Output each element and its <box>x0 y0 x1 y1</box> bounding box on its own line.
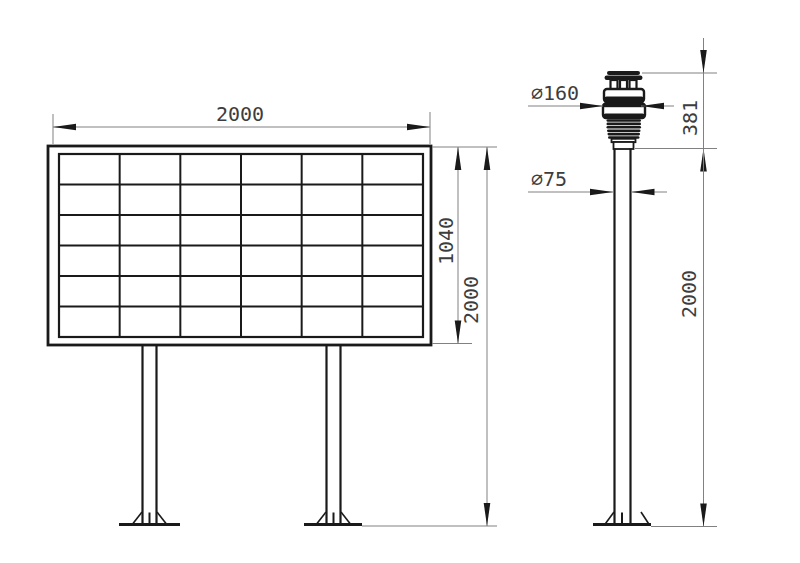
arrowhead-up <box>455 147 462 170</box>
technical-drawing: 2000 1040 2000 <box>0 0 800 563</box>
dimension-pole-height: 2000 <box>651 149 717 527</box>
dim-label-board-total-height: 2000 <box>459 276 483 324</box>
shield-rib <box>608 133 641 136</box>
dim-label-pole-diameter: ∅75 <box>531 167 567 191</box>
dimension-head-diameter: ∅160 <box>528 81 674 109</box>
gusset <box>641 512 649 524</box>
gusset <box>606 512 615 524</box>
sensor-neck <box>614 142 634 149</box>
arrowhead-right <box>407 124 430 131</box>
gusset <box>341 512 350 524</box>
sensor-body-band <box>604 104 645 107</box>
board-left-leg <box>119 346 180 525</box>
arrowhead-up <box>484 147 491 170</box>
dimension-board-width: 2000 <box>53 102 430 144</box>
cad-drawing-sheet: 2000 1040 2000 <box>0 0 800 563</box>
dim-label-head-height: 381 <box>678 100 702 136</box>
sensor-body-band <box>605 97 644 102</box>
panel-grid-lines <box>59 154 423 337</box>
mounting-pole <box>593 149 651 525</box>
sensor-pole-view: ∅160 ∅75 381 2000 <box>528 38 717 527</box>
sensor-body-band <box>604 114 645 118</box>
shield-rib <box>607 123 642 126</box>
sensor-cap-top <box>607 71 640 75</box>
dim-label-pole-height: 2000 <box>677 270 701 318</box>
arrowhead-right <box>580 103 603 110</box>
gusset <box>317 512 326 524</box>
arrowhead-right <box>590 189 613 196</box>
arrowhead-down <box>700 504 707 527</box>
weather-sensor-head <box>603 71 645 149</box>
arrowhead-left <box>53 124 76 131</box>
gusset <box>157 512 166 524</box>
dim-label-panel-height: 1040 <box>434 217 458 265</box>
dim-label-head-diameter: ∅160 <box>531 81 579 105</box>
arrowhead-down <box>484 503 491 526</box>
display-board-view: 2000 1040 2000 <box>48 102 497 526</box>
dim-label-board-width: 2000 <box>216 102 264 126</box>
arrowhead-left <box>632 189 655 196</box>
dimension-pole-diameter: ∅75 <box>528 167 667 195</box>
shield-rib <box>607 126 642 129</box>
shield-rib <box>607 129 641 132</box>
sensor-radiation-shield <box>607 119 642 139</box>
dimension-head-height: 381 <box>635 38 717 172</box>
arrowhead-down <box>700 50 707 73</box>
board-right-leg <box>304 346 362 525</box>
shield-rib <box>607 119 642 122</box>
gusset <box>133 512 142 524</box>
